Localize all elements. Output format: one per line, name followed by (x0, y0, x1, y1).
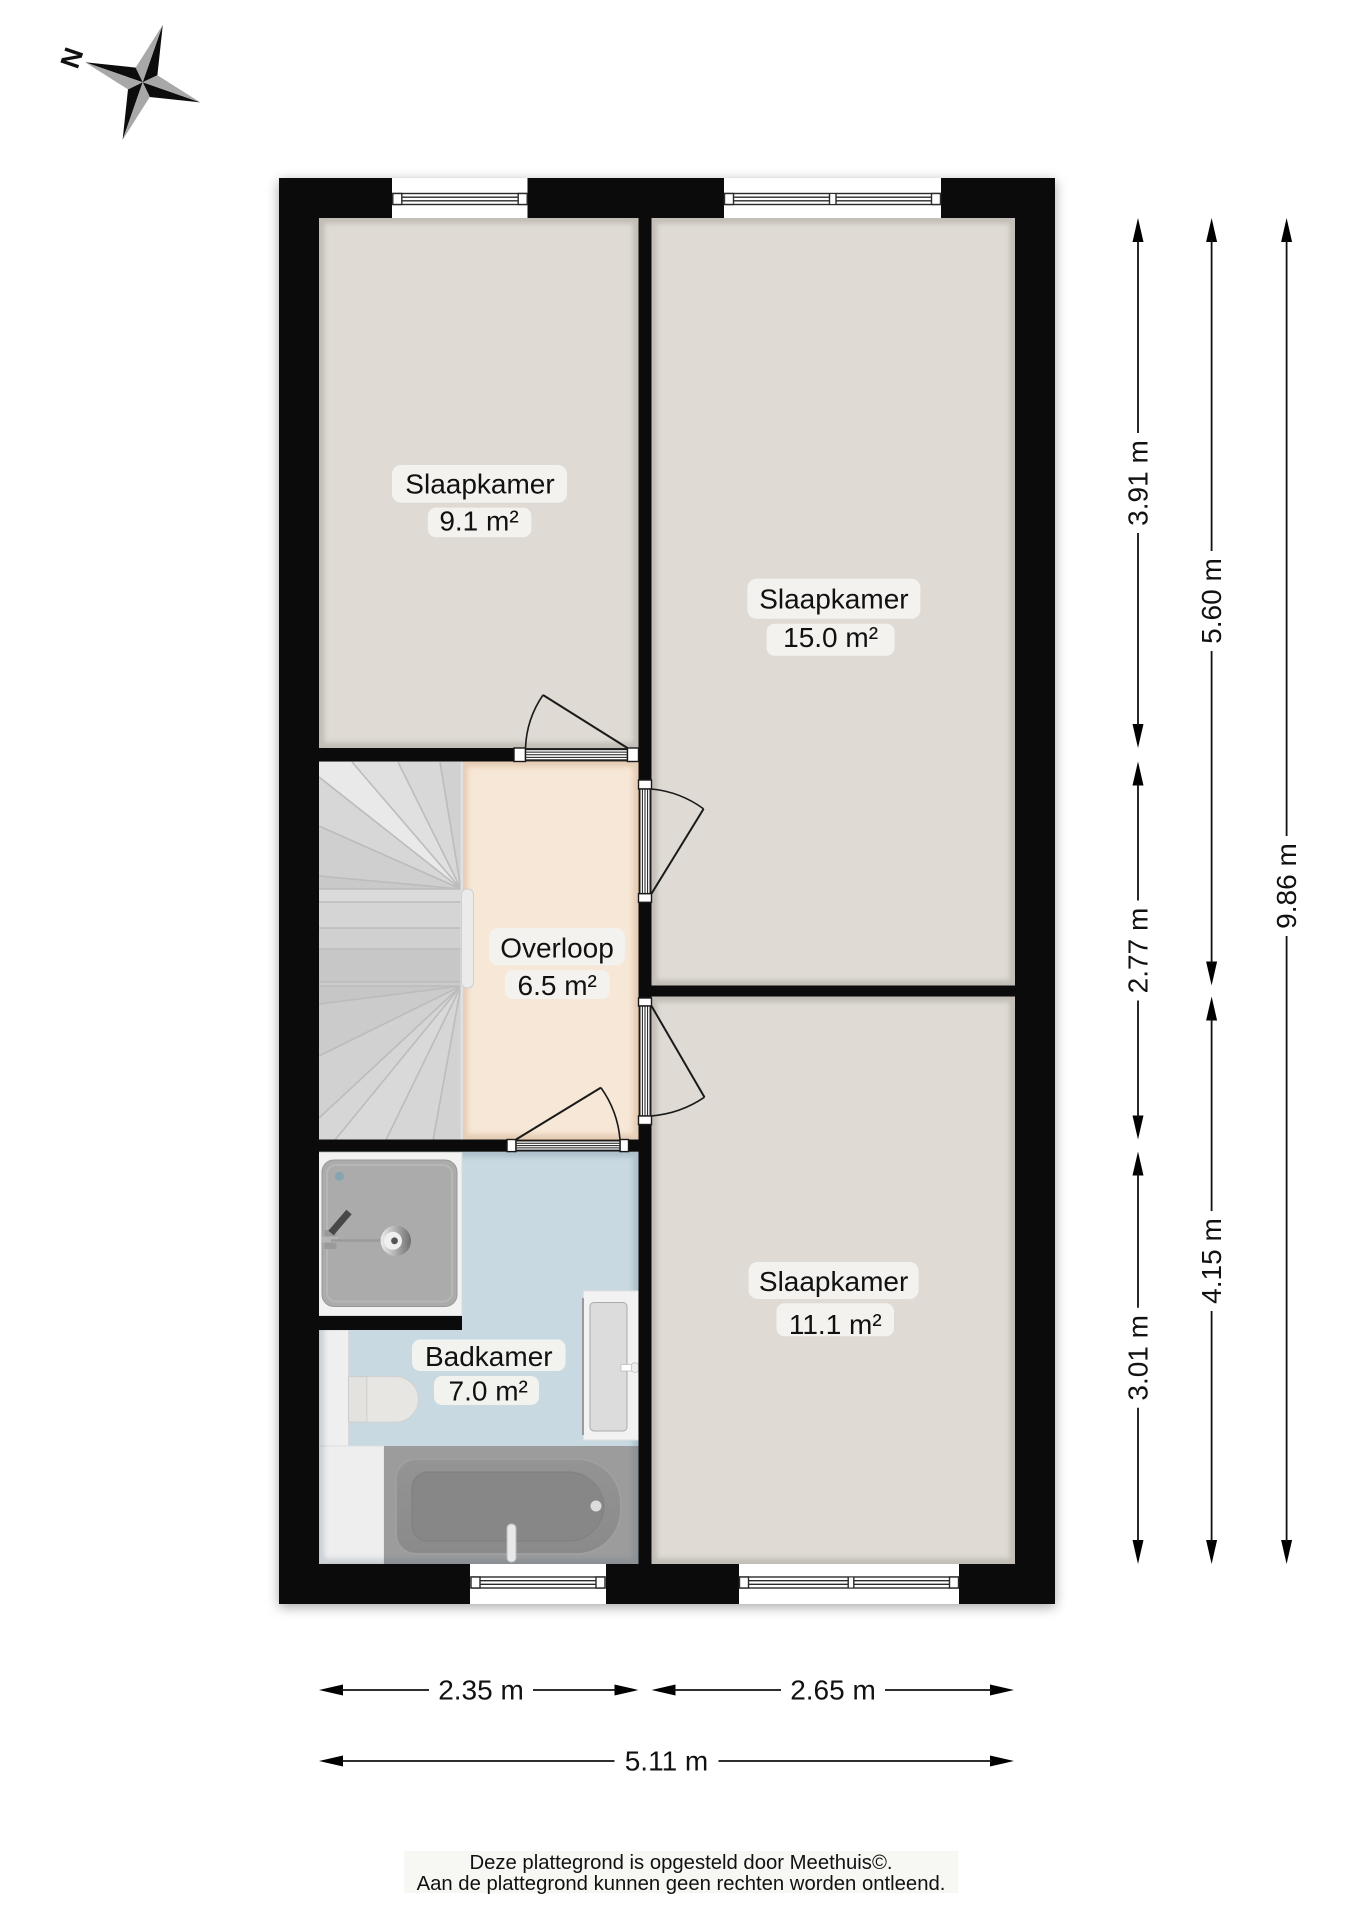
svg-text:5.60 m: 5.60 m (1196, 558, 1227, 644)
svg-text:9.1 m²: 9.1 m² (439, 506, 518, 537)
svg-text:4.15 m: 4.15 m (1196, 1218, 1227, 1304)
svg-text:3.01 m: 3.01 m (1123, 1315, 1154, 1401)
svg-text:Aan de plattegrond kunnen geen: Aan de plattegrond kunnen geen rechten w… (417, 1873, 946, 1895)
svg-text:9.86 m: 9.86 m (1271, 843, 1302, 929)
svg-text:3.91 m: 3.91 m (1123, 440, 1154, 526)
svg-text:Deze plattegrond is opgesteld: Deze plattegrond is opgesteld door Meeth… (469, 1852, 892, 1874)
svg-text:Slaapkamer: Slaapkamer (759, 584, 908, 615)
svg-text:2.65 m: 2.65 m (790, 1675, 876, 1706)
svg-text:7.0 m²: 7.0 m² (449, 1376, 528, 1407)
svg-text:Badkamer: Badkamer (425, 1341, 553, 1372)
svg-text:11.1 m²: 11.1 m² (789, 1309, 882, 1340)
svg-text:5.11 m: 5.11 m (625, 1746, 709, 1777)
svg-text:15.0 m²: 15.0 m² (783, 622, 878, 653)
svg-text:2.77 m: 2.77 m (1123, 908, 1154, 994)
svg-text:2.35 m: 2.35 m (438, 1675, 524, 1706)
svg-text:6.5 m²: 6.5 m² (518, 970, 597, 1001)
svg-text:Slaapkamer: Slaapkamer (759, 1266, 908, 1297)
svg-text:Overloop: Overloop (500, 933, 614, 964)
svg-text:Slaapkamer: Slaapkamer (405, 469, 554, 500)
